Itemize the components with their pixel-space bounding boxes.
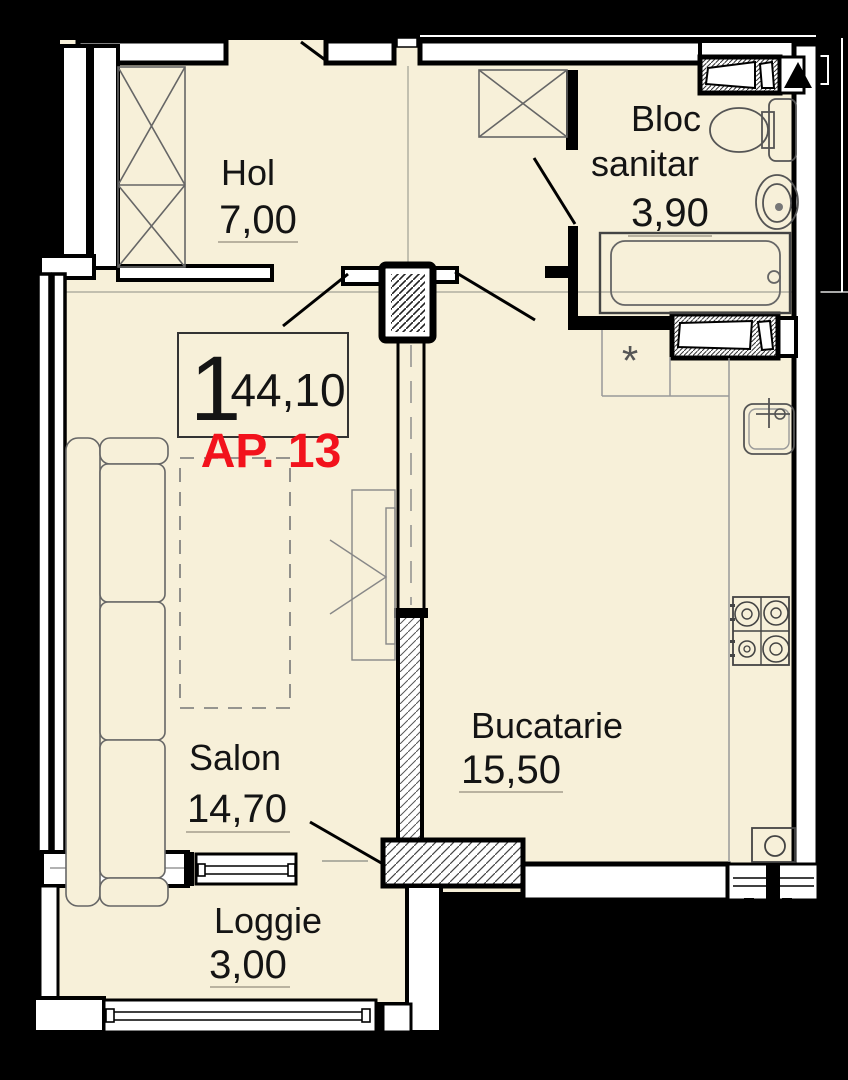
door-stub-left (343, 268, 383, 284)
wall-left-upper-outer (62, 46, 88, 268)
room-area: 7,00 (219, 198, 297, 242)
vent-shaft-top (700, 57, 812, 93)
wall-top-right (420, 41, 704, 63)
wall-left-upper-inner (92, 46, 118, 268)
apartment-total-area: 44,10 (230, 364, 345, 416)
wall-hol-bottom (118, 266, 272, 280)
salon-window (196, 854, 296, 884)
kitchen-bottom (523, 864, 818, 903)
wall-joint (397, 38, 417, 47)
sofa-cushion (100, 740, 165, 878)
loggia-window (104, 1000, 376, 1032)
vent-mark: * (622, 337, 638, 384)
room-name: Hol (221, 152, 275, 193)
room-name: Bucatarie (471, 705, 623, 746)
apartment-label: AP. 13 (201, 425, 342, 478)
wall-loggia-right-step (383, 1004, 411, 1032)
sofa-cushion (100, 464, 165, 602)
wall-kitchen-bottom (523, 864, 728, 900)
wall-bath-bottom (568, 316, 674, 330)
room-area: 3,00 (209, 943, 287, 987)
wall-duct-to-right (778, 318, 796, 356)
sofa-armrest-bottom (100, 878, 168, 906)
wall-left-lower-inner (53, 274, 65, 852)
room-name: Loggie (214, 900, 322, 941)
sofa-backrest (66, 438, 100, 906)
loggia-pillar-left (34, 998, 104, 1032)
room-area: 14,70 (187, 787, 287, 831)
wall-left-lower-outer (38, 274, 50, 852)
vent-duct-mid (672, 314, 778, 358)
sofa (66, 438, 168, 906)
wall-top-mid (326, 41, 394, 63)
door-stub-right (433, 268, 457, 282)
room-name: sanitar (591, 143, 699, 184)
column-hatch (391, 274, 425, 332)
room-name: Salon (189, 737, 281, 778)
wall-right (794, 44, 818, 892)
pillar (383, 840, 523, 886)
wall-loggia-left (40, 886, 58, 1000)
sofa-cushion (100, 602, 165, 740)
floor-plan-page: * (0, 0, 848, 1080)
room-area: 3,90 (631, 191, 709, 235)
wall-bath-stub (545, 266, 570, 278)
room-name: Bloc (631, 98, 701, 139)
sofa-armrest-top (100, 438, 168, 464)
floor-plan: * (0, 0, 848, 1080)
room-area: 15,50 (461, 748, 561, 792)
kitchen-window (728, 864, 818, 900)
